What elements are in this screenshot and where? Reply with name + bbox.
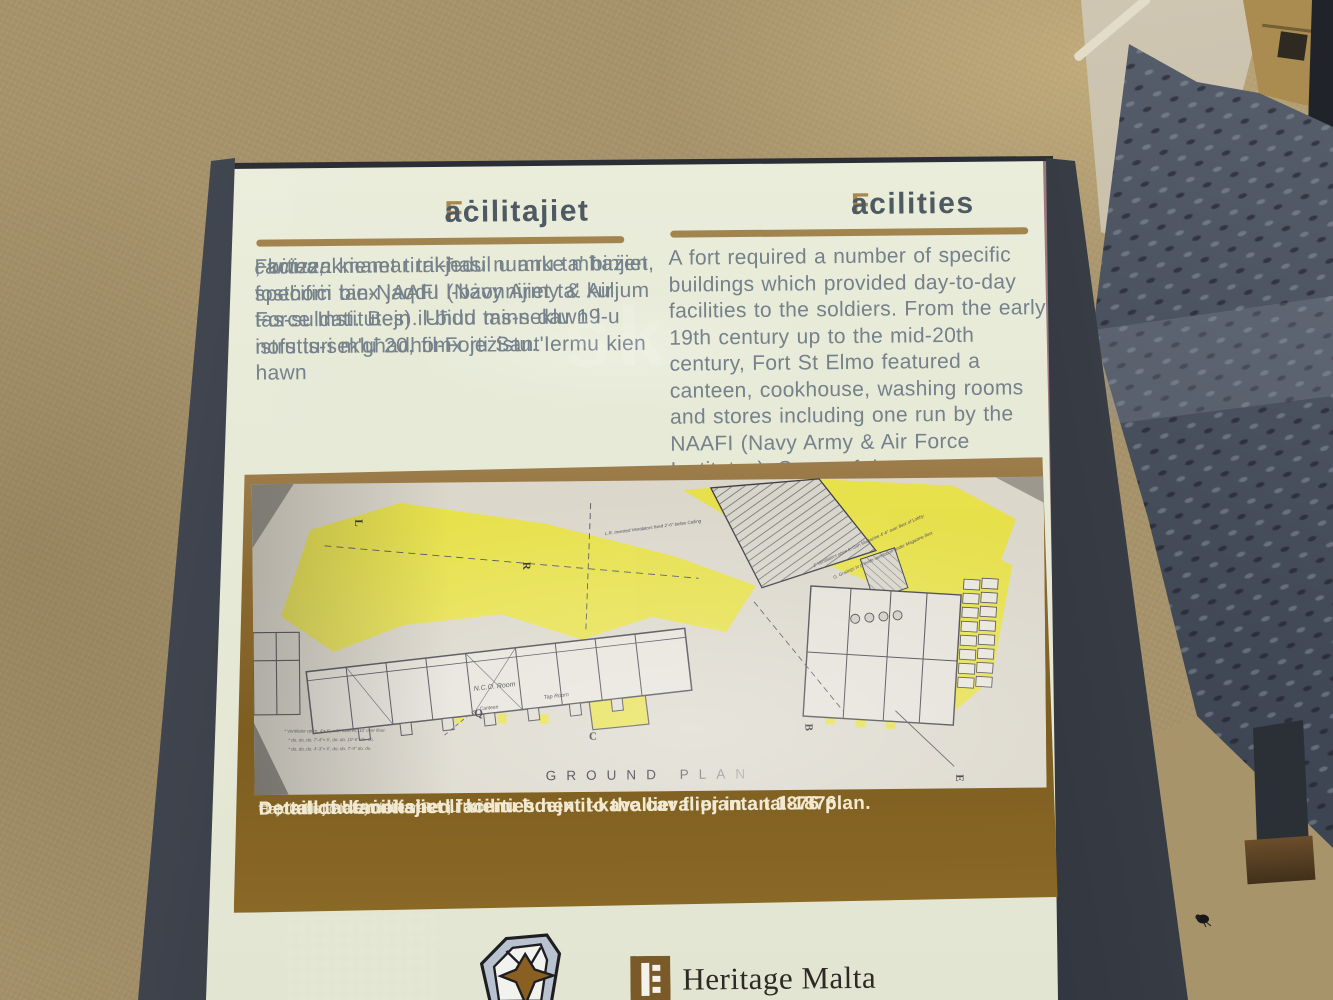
title-maltese: Faċilitajiet	[247, 194, 642, 198]
ground-plan-figure: N.C.O. Room Canteen Tap Room	[252, 476, 1047, 796]
plan-left-shade	[252, 477, 1047, 795]
credit-english: Credit: National Archives UK	[259, 799, 436, 817]
gold-rule-maltese	[256, 236, 624, 247]
fortifications-star-logo	[470, 932, 581, 1000]
faded-watermark-square	[287, 915, 436, 1000]
heritage-malta-logo	[630, 956, 670, 1000]
sign-content: Faċilitajiet Facilities Fortizza kienet …	[0, 0, 1333, 1000]
photo-of-information-panel: Faċilitajiet Facilities Fortizza kienet …	[0, 0, 1333, 1000]
brown-figure-band: N.C.O. Room Canteen Tap Room	[229, 457, 1057, 913]
title-rest-en: acilities	[851, 187, 975, 222]
paragraph-maltese: Fortizza kienet tirrikjedu numru ta' bin…	[254, 251, 654, 255]
glass-reflection-letters: sk	[563, 288, 672, 388]
title-english: Facilities	[662, 186, 1040, 190]
title-rest-mt: aċilitajiet	[444, 194, 589, 229]
heritage-malta-wordmark: Heritage Malta	[682, 960, 876, 998]
gold-rule-english	[670, 227, 1028, 237]
